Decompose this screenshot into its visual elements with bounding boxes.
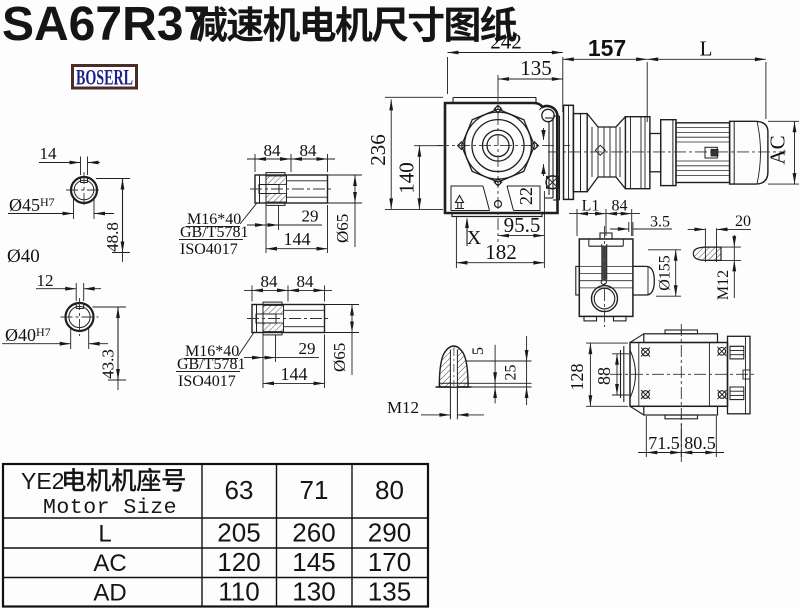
svg-text:84: 84 [261, 272, 279, 291]
svg-text:Ø155: Ø155 [657, 255, 674, 291]
svg-text:135: 135 [368, 577, 411, 607]
svg-text:80: 80 [375, 475, 404, 505]
svg-text:260: 260 [292, 518, 335, 548]
svg-text:182: 182 [485, 240, 517, 264]
svg-text:48.8: 48.8 [103, 222, 122, 252]
svg-text:GB/T5781: GB/T5781 [180, 224, 248, 241]
svg-text:120: 120 [217, 547, 260, 577]
svg-text:130: 130 [292, 577, 335, 607]
svg-text:84: 84 [297, 272, 315, 291]
svg-text:145: 145 [292, 547, 335, 577]
svg-text:Ø65: Ø65 [333, 214, 352, 243]
svg-text:12: 12 [37, 271, 54, 290]
svg-text:20: 20 [735, 213, 751, 230]
svg-text:AC: AC [766, 135, 790, 164]
svg-text:M12: M12 [715, 270, 732, 300]
svg-text:L1: L1 [582, 198, 600, 215]
svg-text:SA67R37: SA67R37 [2, 0, 210, 51]
svg-text:205: 205 [217, 518, 260, 548]
svg-text:ISO4017: ISO4017 [178, 373, 236, 390]
svg-text:22: 22 [516, 187, 536, 205]
svg-text:290: 290 [368, 518, 411, 548]
svg-text:128: 128 [567, 364, 587, 391]
svg-text:L: L [700, 37, 713, 61]
svg-text:29: 29 [299, 339, 316, 358]
svg-text:L: L [98, 521, 111, 548]
svg-text:M12: M12 [387, 398, 419, 417]
svg-text:84: 84 [264, 141, 282, 160]
svg-text:Motor Size: Motor Size [43, 496, 177, 520]
svg-text:63: 63 [225, 475, 254, 505]
svg-text:144: 144 [284, 229, 311, 249]
svg-text:157: 157 [588, 35, 626, 61]
svg-text:GB/T5781: GB/T5781 [177, 356, 245, 373]
svg-text:29: 29 [302, 207, 319, 226]
svg-text:140: 140 [395, 162, 419, 194]
svg-text:5: 5 [470, 347, 487, 355]
svg-text:71: 71 [300, 475, 329, 505]
svg-text:84: 84 [612, 198, 628, 215]
svg-text:110: 110 [218, 577, 259, 607]
svg-text:144: 144 [281, 364, 308, 384]
svg-text:43.3: 43.3 [99, 349, 118, 379]
svg-text:14: 14 [40, 144, 58, 163]
svg-text:95.5: 95.5 [504, 213, 541, 237]
svg-text:71.5: 71.5 [648, 433, 680, 453]
svg-text:135: 135 [520, 56, 552, 80]
svg-text:YE2: YE2 [21, 468, 64, 494]
svg-text:170: 170 [368, 547, 411, 577]
svg-text:Ø65: Ø65 [330, 343, 349, 372]
svg-text:88: 88 [594, 367, 614, 385]
svg-text:25: 25 [503, 365, 520, 381]
svg-text:Ø40: Ø40 [7, 246, 40, 267]
svg-text:ISO4017: ISO4017 [180, 241, 238, 258]
svg-text:BOSERL: BOSERL [76, 65, 133, 90]
svg-text:X: X [467, 227, 482, 249]
svg-text:3.5: 3.5 [650, 214, 670, 231]
svg-text:236: 236 [366, 134, 390, 166]
svg-text:AC: AC [93, 550, 126, 577]
svg-text:80.5: 80.5 [684, 433, 716, 453]
svg-text:242: 242 [490, 30, 522, 54]
svg-text:84: 84 [300, 141, 318, 160]
svg-text:AD: AD [93, 580, 126, 607]
